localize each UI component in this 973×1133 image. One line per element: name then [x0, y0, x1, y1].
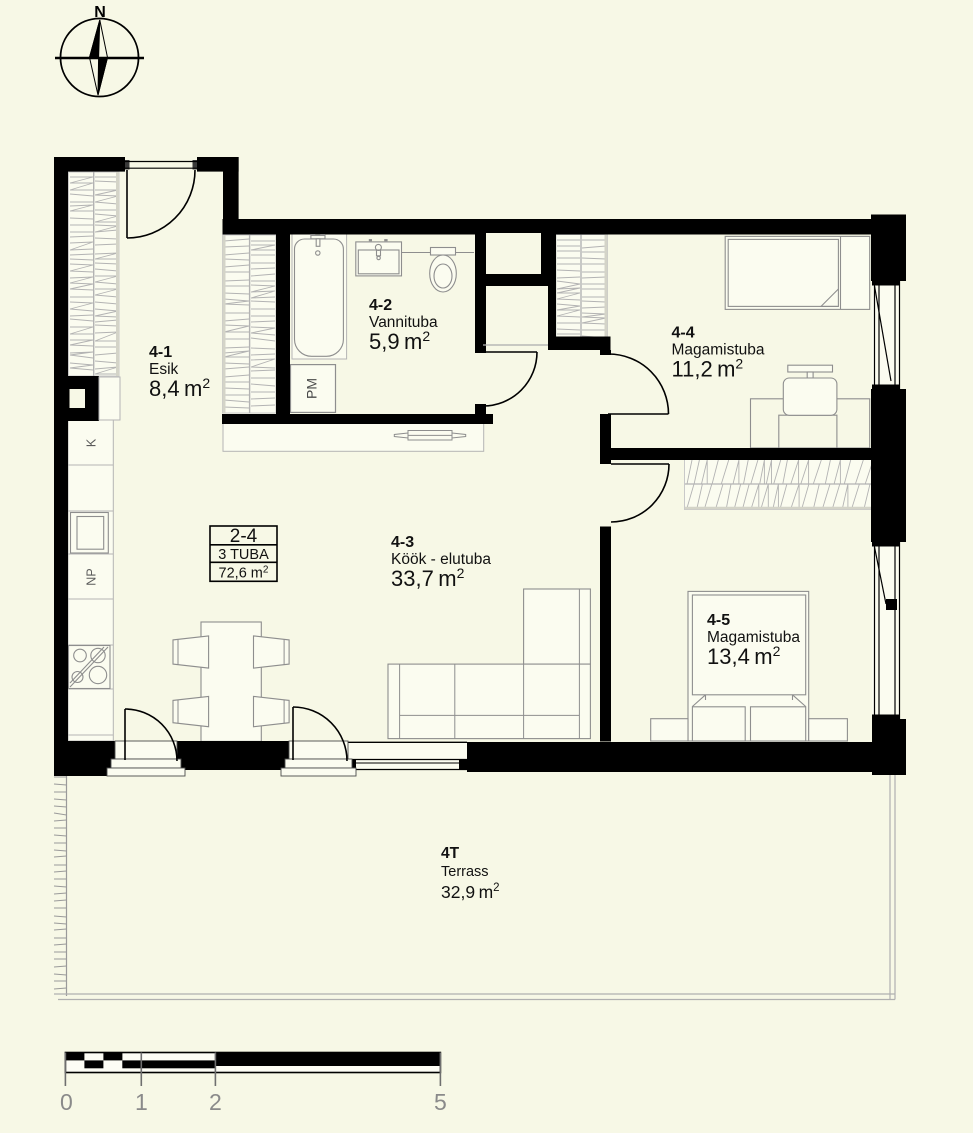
svg-text:4-5: 4-5 — [707, 612, 730, 629]
svg-text:72,6 m2: 72,6 m2 — [219, 565, 269, 582]
svg-text:5: 5 — [434, 1089, 447, 1115]
svg-text:4-4: 4-4 — [672, 325, 695, 342]
svg-text:2: 2 — [209, 1089, 222, 1115]
svg-text:4T: 4T — [441, 845, 460, 862]
svg-text:0: 0 — [60, 1089, 73, 1115]
svg-text:3 TUBA: 3 TUBA — [218, 547, 269, 563]
svg-text:11,2 m2: 11,2 m2 — [672, 356, 744, 382]
svg-text:K: K — [84, 438, 98, 447]
svg-text:4-3: 4-3 — [391, 534, 414, 551]
svg-text:PM: PM — [304, 378, 320, 399]
svg-text:32,9 m2: 32,9 m2 — [441, 882, 500, 902]
svg-text:33,7 m2: 33,7 m2 — [391, 565, 465, 591]
svg-text:1: 1 — [135, 1089, 148, 1115]
svg-text:4-1: 4-1 — [149, 344, 172, 361]
svg-text:N: N — [94, 4, 106, 21]
svg-text:8,4 m2: 8,4 m2 — [149, 375, 210, 401]
svg-text:13,4 m2: 13,4 m2 — [707, 643, 781, 669]
svg-text:Terrass: Terrass — [441, 864, 489, 880]
svg-text:4-2: 4-2 — [369, 297, 392, 314]
svg-text:5,9 m2: 5,9 m2 — [369, 328, 430, 354]
svg-text:2-4: 2-4 — [230, 526, 258, 547]
svg-text:NP: NP — [84, 568, 98, 585]
